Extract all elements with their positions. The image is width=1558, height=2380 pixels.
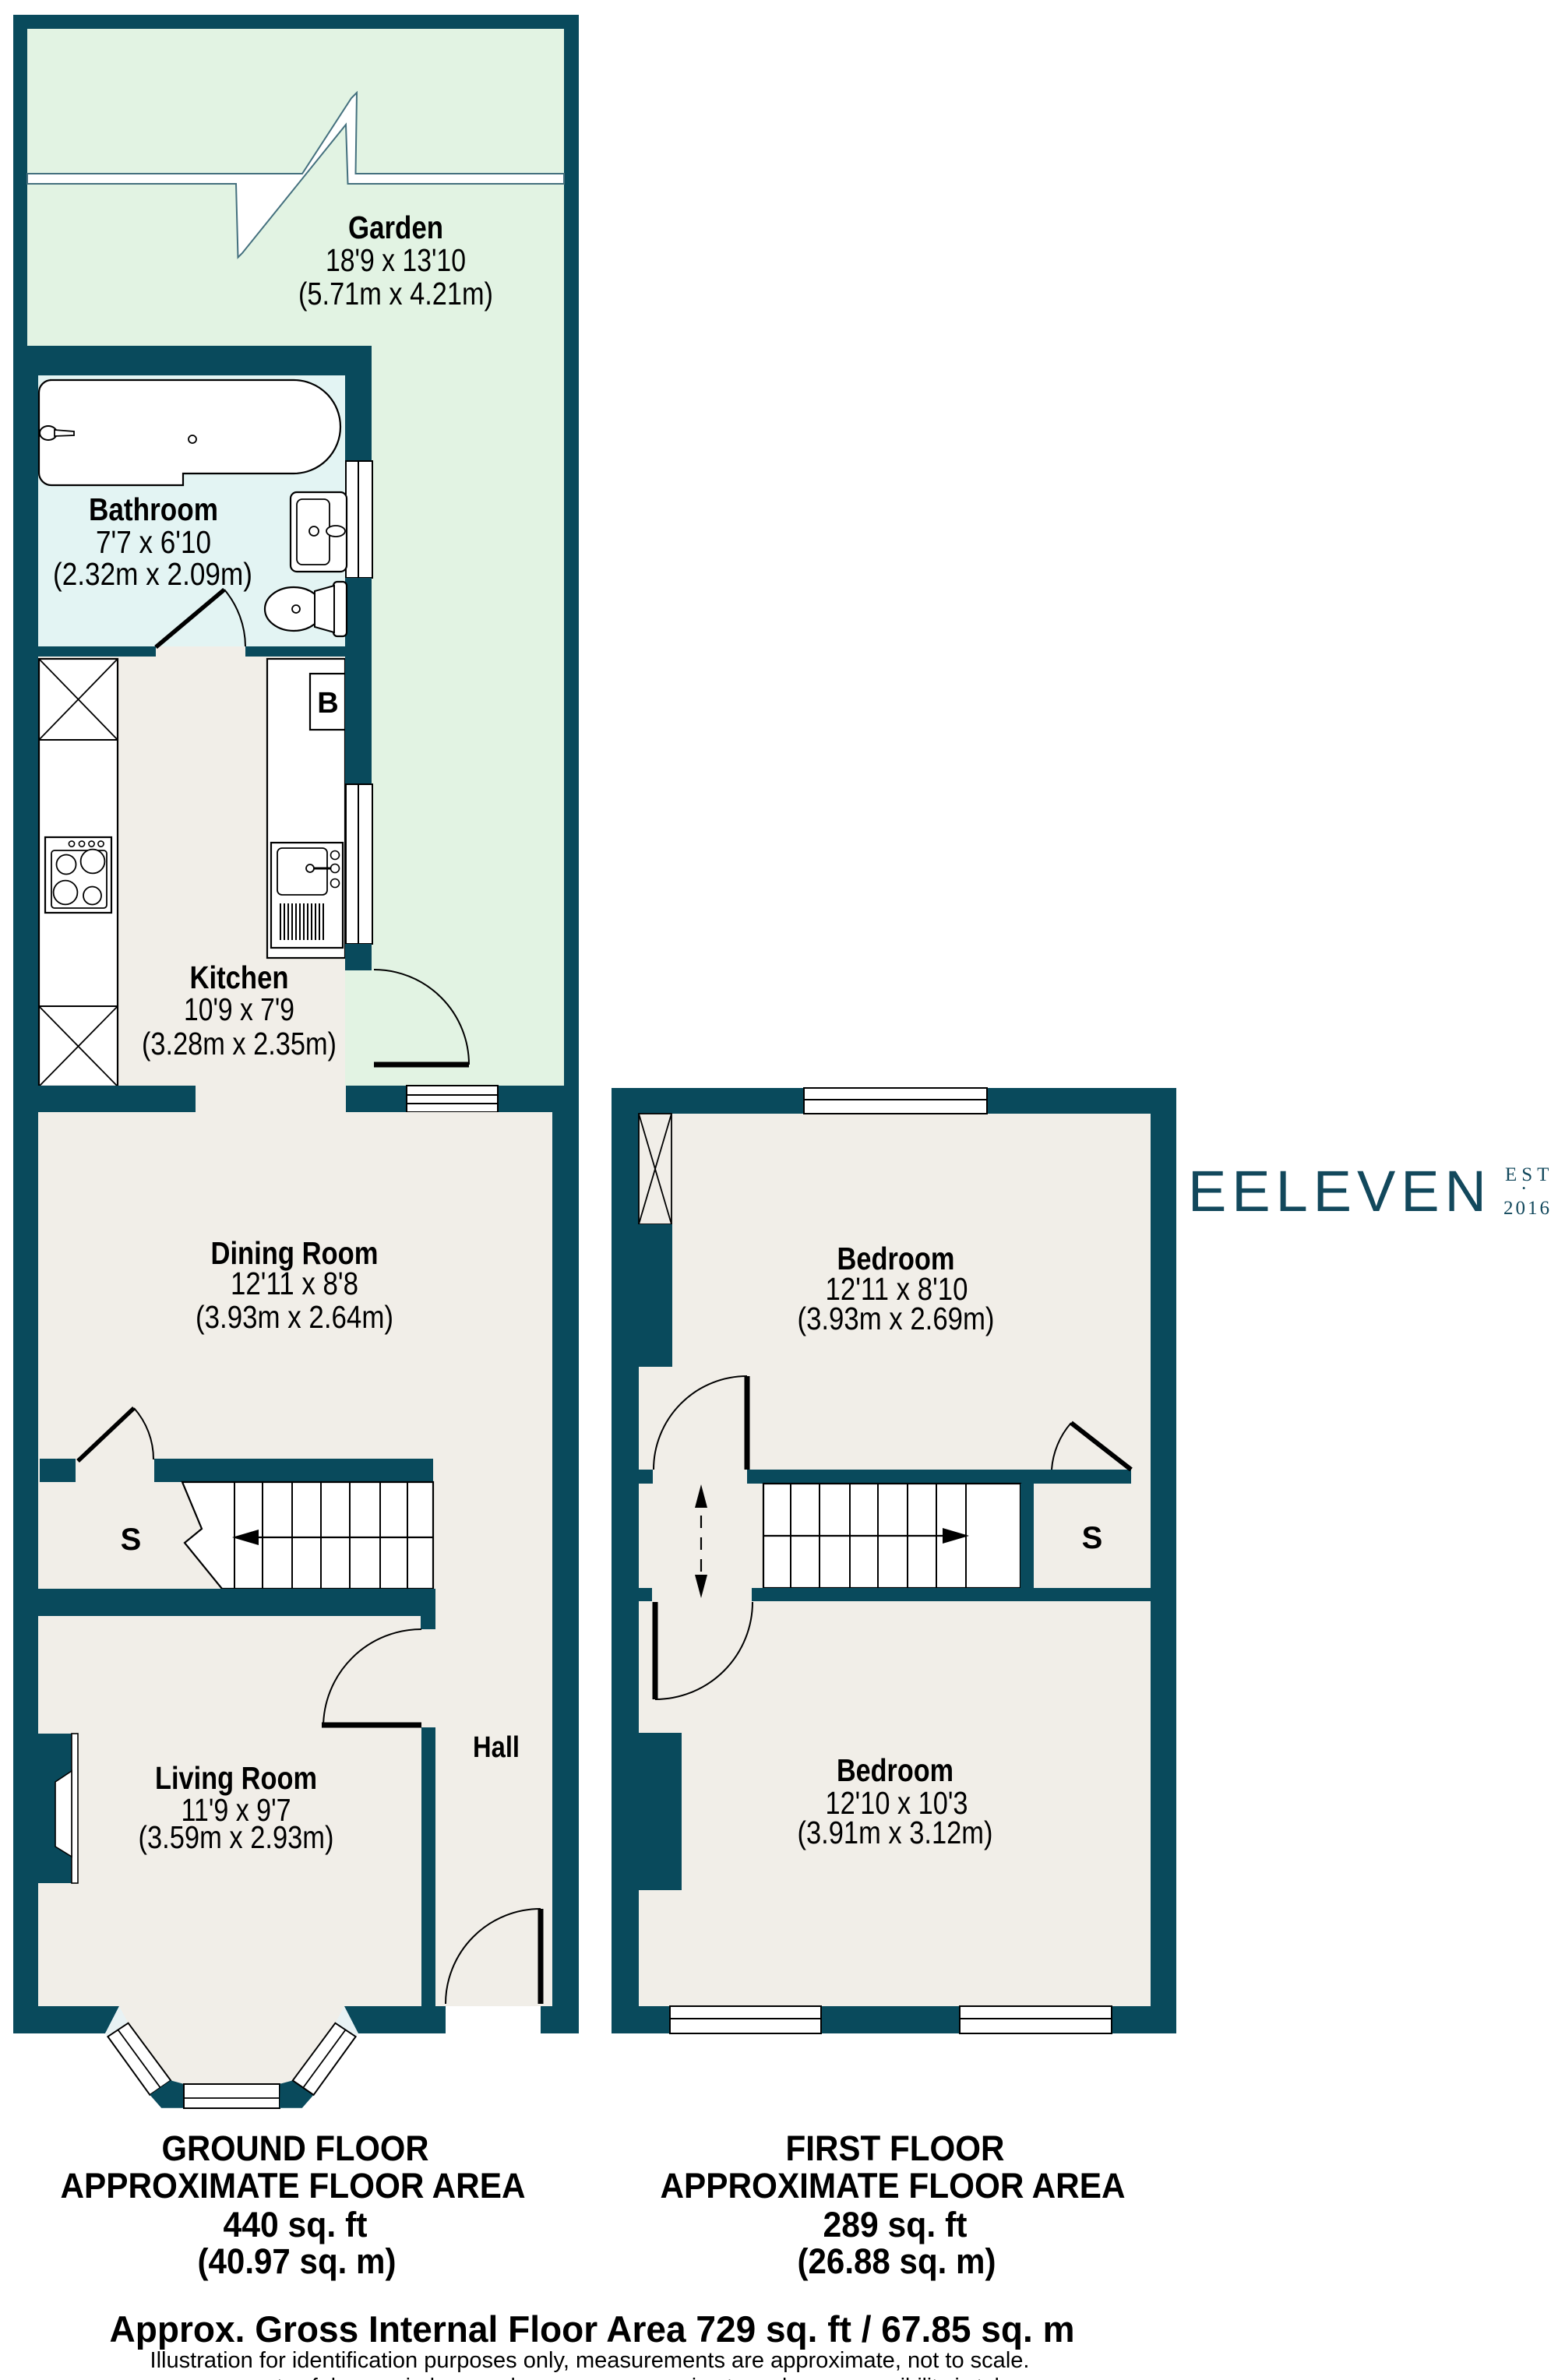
svg-text:(3.93m x 2.69m): (3.93m x 2.69m) (798, 1301, 995, 1336)
svg-text:Kitchen: Kitchen (190, 959, 289, 995)
svg-text:S: S (121, 1523, 142, 1557)
svg-text:289 sq. ft: 289 sq. ft (823, 2205, 968, 2244)
svg-text:(3.93m x 2.64m): (3.93m x 2.64m) (196, 1299, 393, 1335)
svg-text:measurements of doors, windows: measurements of doors, windows and rooms… (150, 2375, 1030, 2380)
svg-text:GROUND FLOOR: GROUND FLOOR (162, 2128, 429, 2168)
svg-text:Illustration for identificatio: Illustration for identification purposes… (150, 2348, 1030, 2373)
svg-text:·: · (1521, 1178, 1527, 1199)
svg-text:2016: 2016 (1503, 1198, 1552, 1219)
svg-text:10'9 x 7'9: 10'9 x 7'9 (184, 991, 294, 1027)
svg-text:(40.97 sq. m): (40.97 sq. m) (198, 2241, 397, 2281)
svg-text:FIRST FLOOR: FIRST FLOOR (786, 2128, 1005, 2168)
svg-text:(3.91m x 3.12m): (3.91m x 3.12m) (798, 1815, 993, 1850)
svg-text:Living Room: Living Room (155, 1760, 317, 1796)
svg-text:(26.88 sq. m): (26.88 sq. m) (798, 2241, 996, 2281)
svg-text:440 sq. ft: 440 sq. ft (224, 2205, 368, 2244)
svg-text:APPROXIMATE FLOOR AREA: APPROXIMATE FLOOR AREA (61, 2166, 526, 2206)
svg-text:(2.32m x 2.09m): (2.32m x 2.09m) (53, 556, 252, 592)
svg-text:(5.71m x 4.21m): (5.71m x 4.21m) (298, 276, 493, 312)
svg-text:Hall: Hall (473, 1731, 520, 1764)
svg-text:12'11 x 8'8: 12'11 x 8'8 (231, 1266, 358, 1301)
svg-text:EELEVEN: EELEVEN (1188, 1159, 1486, 1223)
svg-text:APPROXIMATE FLOOR AREA: APPROXIMATE FLOOR AREA (661, 2166, 1126, 2206)
svg-text:Bathroom: Bathroom (89, 491, 218, 527)
svg-text:S: S (1082, 1521, 1103, 1555)
svg-text:(3.28m x 2.35m): (3.28m x 2.35m) (142, 1026, 337, 1061)
svg-text:EST: EST (1505, 1164, 1553, 1185)
svg-text:7'7 x 6'10: 7'7 x 6'10 (96, 524, 211, 560)
svg-text:Approx. Gross Internal Floor A: Approx. Gross Internal Floor Area 729 sq… (110, 2308, 1075, 2350)
svg-text:B: B (317, 687, 338, 720)
svg-text:(3.59m x 2.93m): (3.59m x 2.93m) (139, 1819, 334, 1855)
svg-text:18'9 x 13'10: 18'9 x 13'10 (326, 242, 466, 278)
svg-text:Garden: Garden (348, 209, 443, 245)
svg-text:Bedroom: Bedroom (837, 1752, 953, 1788)
